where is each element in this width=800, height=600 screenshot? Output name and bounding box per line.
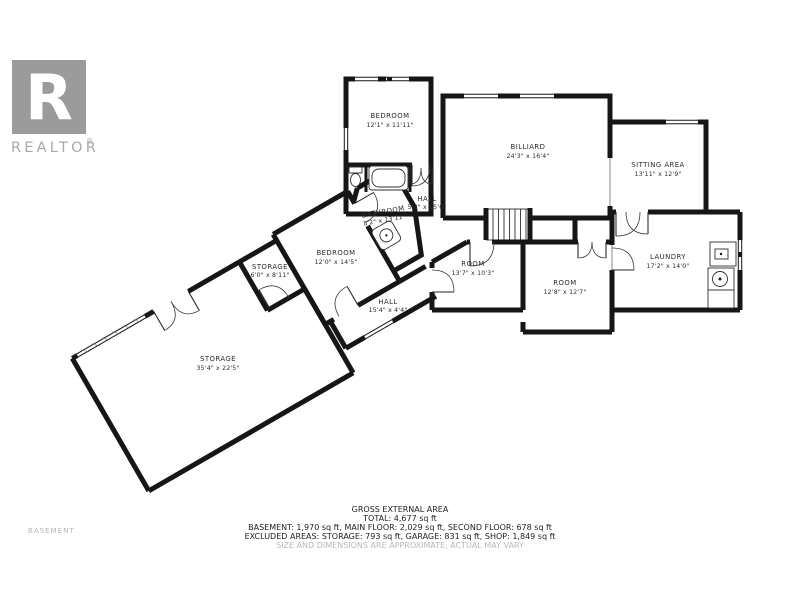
staircase-icon (487, 209, 530, 240)
realtor-logo-letter: R (25, 61, 73, 134)
room-label-bedroom-lower: BEDROOM 12'0" x 14'5" (315, 249, 358, 266)
room-name: ROOM (553, 279, 576, 287)
room-label-laundry: LAUNDRY 17'2" x 14'0" (647, 253, 690, 270)
summary-disclaimer: SIZE AND DIMENSIONS ARE APPROXIMATE, ACT… (0, 541, 800, 550)
realtor-logo: R REALTOR ® (11, 60, 99, 156)
room-dims: 13'7" x 10'3" (452, 270, 495, 277)
room-label-sitting-area: SITTING AREA 13'11" x 12'9" (631, 161, 684, 178)
room-name: HALL (378, 298, 397, 306)
room-dims: 15'4" x 4'4" (369, 307, 408, 314)
room-name: STORAGE (252, 263, 288, 271)
door-arc-icon (612, 248, 634, 270)
door-arc-icon (578, 242, 592, 258)
registered-trademark-icon: ® (86, 137, 94, 146)
room-label-room-1: ROOM 13'7" x 10'3" (452, 260, 495, 277)
window-icon (520, 94, 554, 97)
room-name: ROOM (461, 260, 484, 268)
room-dims: 6'0" x 8'11" (251, 272, 290, 279)
summary-excluded: EXCLUDED AREAS: STORAGE: 793 sq ft, GARA… (0, 532, 800, 541)
room-label-billiard: BILLIARD 24'3" x 16'4" (507, 143, 550, 160)
window-icon (76, 314, 147, 358)
room-label-storage-large: STORAGE 35'4" x 22'5" (197, 355, 240, 372)
window-icon (364, 320, 393, 339)
room-dims: 24'3" x 16'4" (507, 153, 550, 160)
room-name: SITTING AREA (631, 161, 684, 169)
floorplan-page: BEDROOM 12'1" x 11'11" BILLIARD 24'3" x … (0, 0, 800, 600)
room-dims: 35'4" x 22'5" (197, 365, 240, 372)
room-label-room-2: ROOM 12'8" x 12'7" (544, 279, 587, 296)
door-arc-icon (592, 242, 606, 258)
room-dims: 13'11" x 12'9" (634, 171, 681, 178)
summary-title: GROSS EXTERNAL AREA (0, 505, 800, 514)
window-icon (344, 128, 347, 150)
room-name: BEDROOM (370, 112, 409, 120)
room-dims: 5'8" x 15'0" (408, 204, 447, 211)
window-icon (355, 77, 378, 80)
area-summary: GROSS EXTERNAL AREA TOTAL: 4,677 sq ft B… (0, 505, 800, 550)
room-dims: 17'2" x 14'0" (647, 263, 690, 270)
room-name: HALL (417, 195, 436, 203)
fixtures (349, 166, 736, 308)
room-name: LAUNDRY (650, 253, 686, 261)
room-dims: 12'1" x 11'11" (366, 122, 413, 129)
washer-icon (708, 268, 734, 290)
room-name: BILLIARD (511, 143, 546, 151)
laundry-counter-icon (710, 242, 736, 266)
room-dims: 12'8" x 12'7" (544, 289, 587, 296)
room-label-storage-small: STORAGE 6'0" x 8'11" (251, 263, 290, 279)
window-icon (464, 94, 498, 97)
room-name: STORAGE (200, 355, 236, 363)
summary-floors: BASEMENT: 1,970 sq ft, MAIN FLOOR: 2,029… (0, 523, 800, 532)
door-arc-icon (626, 212, 648, 234)
room-label-bedroom-upper: BEDROOM 12'1" x 11'11" (366, 112, 413, 129)
summary-total: TOTAL: 4,677 sq ft (0, 514, 800, 523)
dryer-icon (708, 290, 734, 308)
window-icon (666, 120, 698, 123)
bathtub-icon (369, 166, 408, 190)
room-dims: 12'0" x 14'5" (315, 259, 358, 266)
room-name: BEDROOM (316, 249, 355, 257)
room-label-hall-lower: HALL 15'4" x 4'4" (369, 298, 408, 314)
toilet-icon (349, 167, 362, 187)
